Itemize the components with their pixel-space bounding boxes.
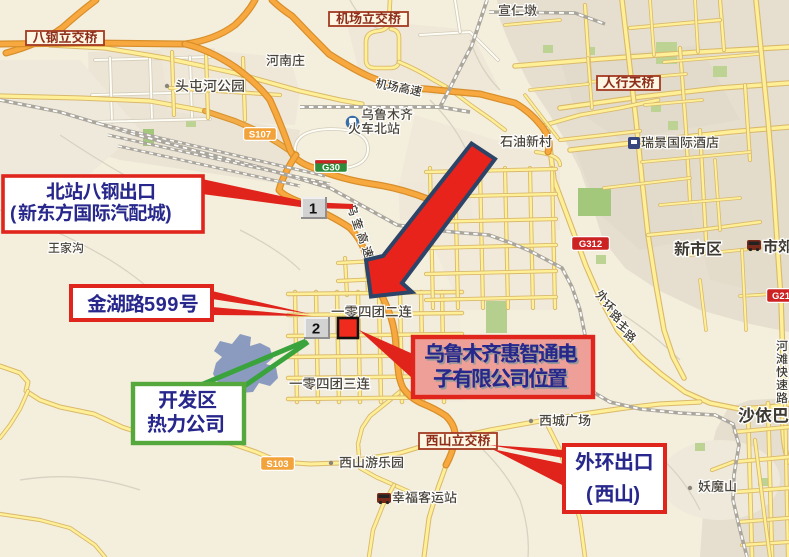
svg-text:1: 1 — [309, 201, 317, 218]
svg-text:): ) — [633, 484, 640, 506]
svg-text:(: ( — [586, 484, 593, 506]
svg-text:G30: G30 — [322, 163, 340, 174]
svg-text:): ) — [165, 204, 171, 225]
svg-text:G312: G312 — [579, 239, 602, 250]
svg-text:(: ( — [10, 204, 17, 225]
svg-text:S103: S103 — [266, 459, 288, 470]
svg-text:9: 9 — [167, 294, 178, 316]
svg-text:S107: S107 — [249, 129, 271, 140]
svg-text:9: 9 — [156, 294, 167, 316]
svg-text:G21: G21 — [772, 291, 789, 302]
svg-text:5: 5 — [144, 294, 155, 316]
svg-text:2: 2 — [312, 321, 320, 338]
